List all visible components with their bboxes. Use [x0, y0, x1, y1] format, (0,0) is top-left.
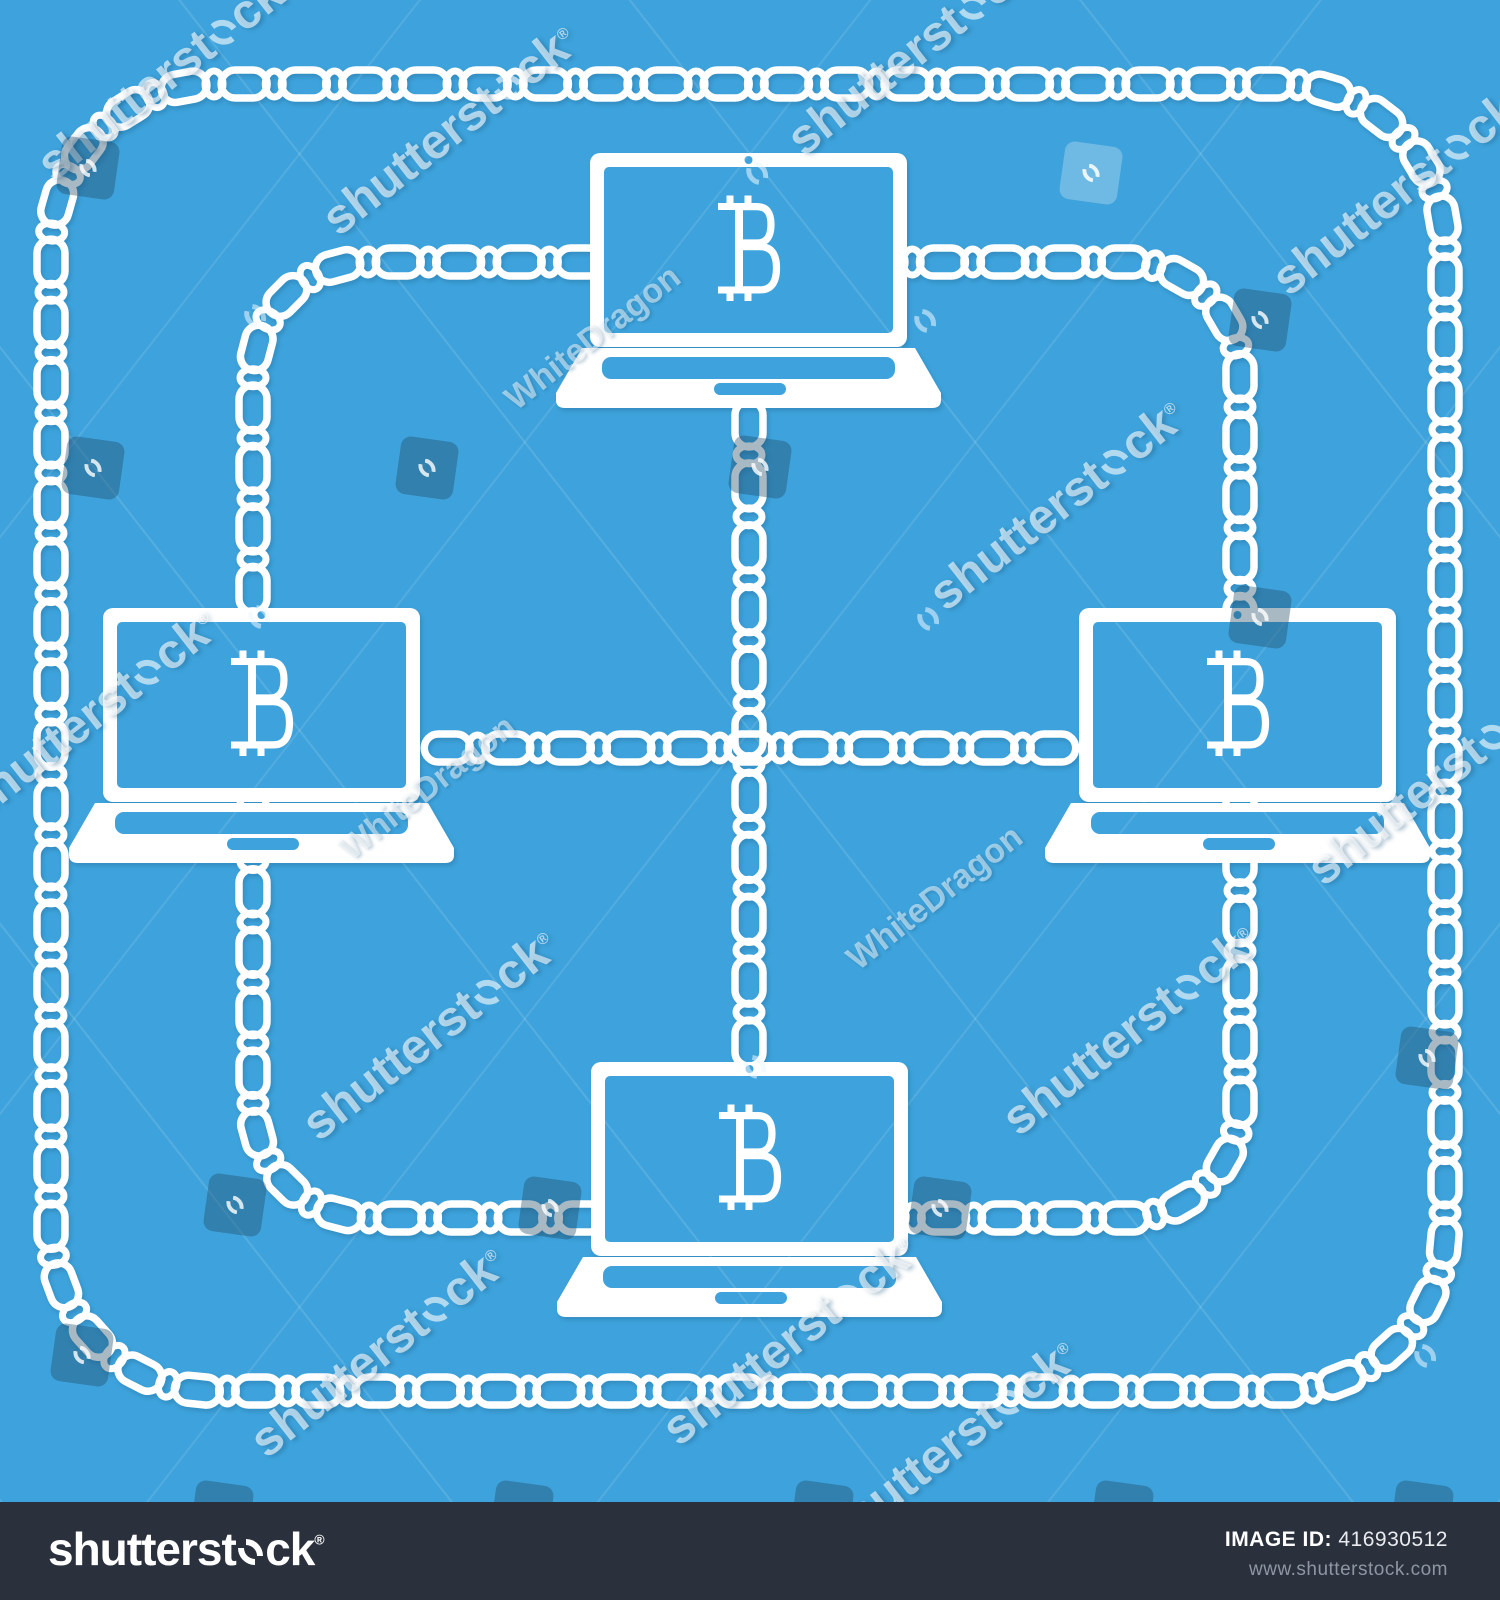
image-id-line: IMAGE ID: 416930512	[1225, 1528, 1448, 1552]
site-url: www.shutterstock.com	[1225, 1559, 1448, 1581]
logo-text-suffix: ck	[265, 1523, 314, 1575]
stock-image-preview: shutterstck®shutterstck®shutterstck®shut…	[0, 0, 1500, 1600]
blockchain-bitcoin-network-illustration	[0, 0, 1500, 1502]
footer-bar: shutterstck® IMAGE ID: 416930512 www.shu…	[0, 1502, 1500, 1600]
laptop-right	[1045, 608, 1430, 863]
laptop-top	[556, 153, 941, 408]
image-id-label: IMAGE ID:	[1225, 1528, 1332, 1551]
shutter-icon	[238, 1539, 264, 1565]
image-meta: IMAGE ID: 416930512 www.shutterstock.com	[1225, 1528, 1448, 1581]
shutterstock-logo: shutterstck®	[48, 1522, 325, 1576]
image-id-value: 416930512	[1338, 1528, 1448, 1551]
laptop-bottom	[557, 1062, 942, 1317]
laptop-left	[69, 608, 454, 863]
logo-text-prefix: shutterst	[48, 1523, 236, 1575]
registered-mark: ®	[314, 1532, 324, 1547]
